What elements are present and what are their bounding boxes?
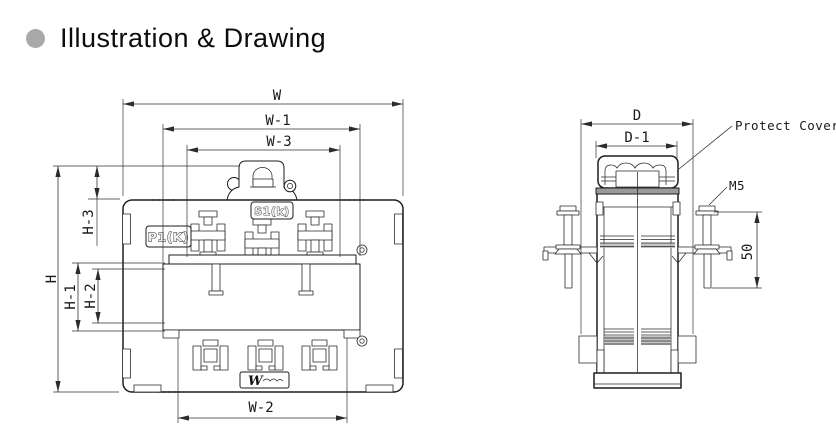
dim-label-50: 50 [740, 244, 756, 261]
m5-bolt [694, 206, 720, 288]
protect-cover-callout: Protect Cover [679, 118, 836, 169]
m5-label: M5 [729, 178, 745, 193]
window-step [163, 330, 179, 338]
terminal-rail [169, 255, 356, 264]
bullet-icon [26, 29, 45, 48]
s1k-label: S1(k) [254, 205, 289, 218]
dim-label-w1: W-1 [265, 113, 290, 129]
dim-d1: D-1 [596, 130, 677, 158]
page-title: Illustration & Drawing [60, 23, 326, 54]
p1k-label: P1(K) [148, 230, 189, 245]
protect-cover [598, 156, 678, 188]
front-view: P1(K) S1(k) W W W-1 [44, 88, 403, 423]
page-header: Illustration & Drawing [26, 23, 326, 54]
m5-leader [709, 187, 727, 205]
top-cover-boss [227, 161, 297, 200]
secondary-terminal-marking: S1(k) [251, 202, 293, 219]
side-view: D D-1 Protect Cover M5 50 [543, 108, 836, 388]
dim-label-w3: W-3 [266, 134, 291, 150]
core-window [163, 264, 360, 330]
m5-bolt [555, 206, 581, 288]
technical-drawing: P1(K) S1(k) W W W-1 [0, 0, 836, 442]
dim-label-w2: W-2 [248, 400, 273, 416]
brand-logo: W [240, 372, 289, 389]
brand-logo-text: W [248, 374, 264, 389]
protect-cover-leader [679, 126, 732, 169]
dim-label-d1: D-1 [624, 130, 649, 146]
cover-screw-icon [284, 180, 296, 192]
page: Illustration & Drawing [0, 0, 836, 442]
dim-label-h: H [44, 275, 60, 283]
window-step [344, 330, 360, 338]
m5-callout: M5 [709, 178, 745, 205]
side-body-base [594, 373, 681, 388]
side-body [596, 172, 680, 387]
dim-label-w: W [273, 88, 282, 104]
protect-cover-label: Protect Cover [735, 118, 836, 133]
dim-label-h1: H-1 [63, 284, 79, 309]
dim-label-h3: H-3 [81, 209, 97, 234]
primary-terminal-marking: P1(K) [146, 226, 191, 247]
dim-h3: H-3 [81, 166, 120, 246]
dim-label-h2: H-2 [83, 283, 99, 308]
dim-label-d: D [633, 108, 641, 124]
